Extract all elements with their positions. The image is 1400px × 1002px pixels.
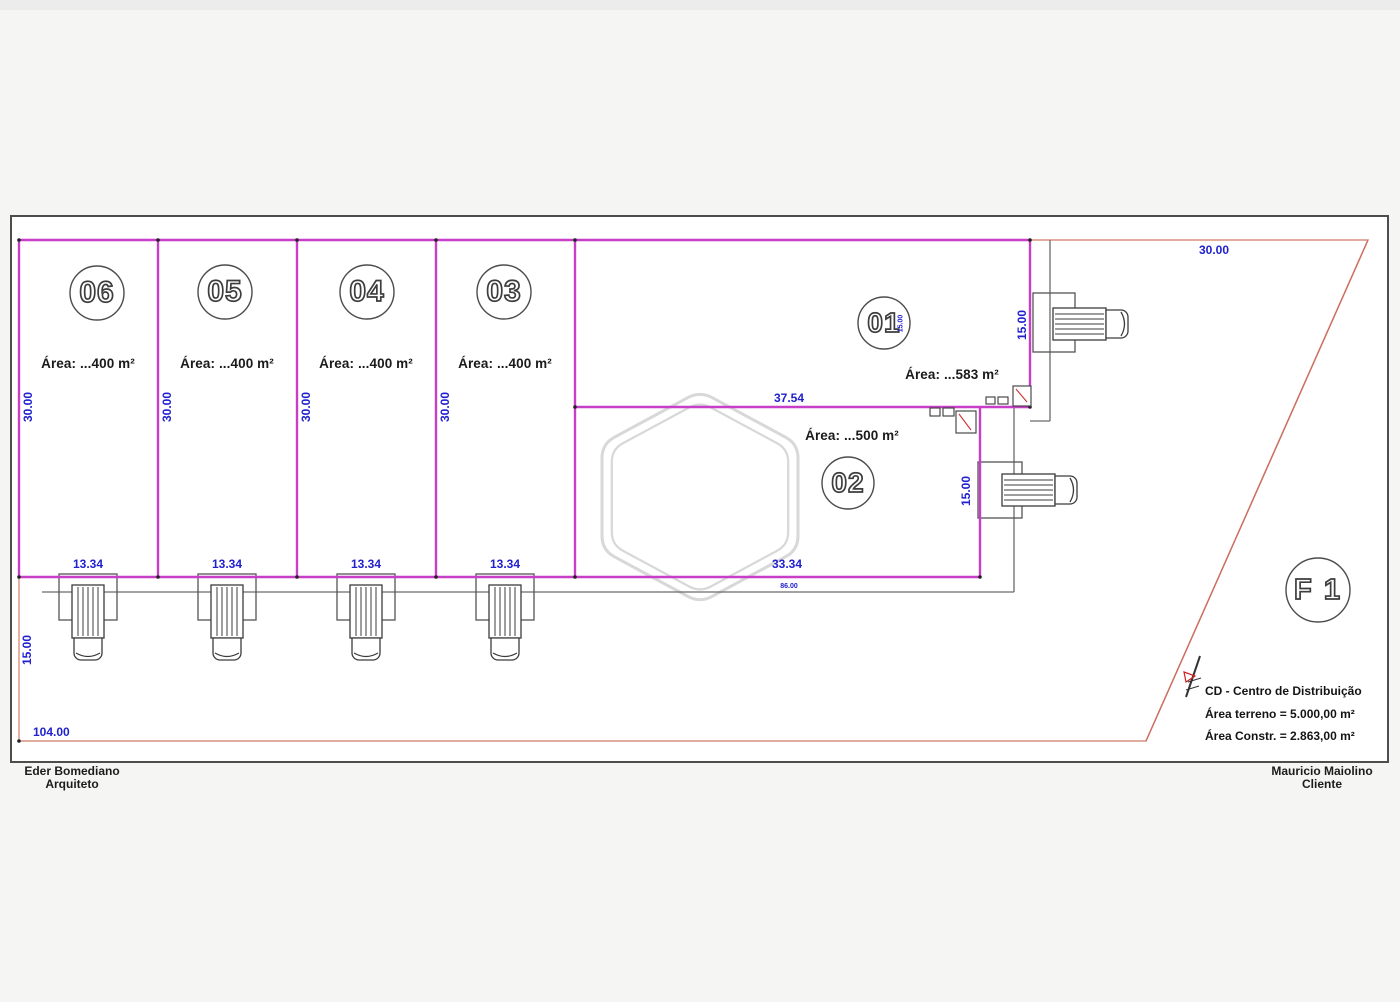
dim-lot01-side: 15.00 bbox=[1015, 303, 1029, 347]
lot-number-06: 06 bbox=[67, 276, 127, 310]
site-plan-canvas: 06 05 04 03 01 02 F 1 Área: ...400 m² Ár… bbox=[0, 0, 1400, 1002]
lot-01-area: Área: ...583 m² bbox=[867, 367, 1037, 382]
lot-06-area: Área: ...400 m² bbox=[13, 356, 163, 371]
dim-width-lot04: 13.34 bbox=[336, 557, 396, 571]
lot-number-05: 05 bbox=[195, 275, 255, 309]
truck-icon bbox=[211, 585, 243, 660]
bottom-strip bbox=[0, 0, 1400, 10]
dim-width-lot06: 13.34 bbox=[58, 557, 118, 571]
truck-icon bbox=[1002, 474, 1077, 506]
legend-terrain-area: Área terreno = 5.000,00 m² bbox=[1205, 707, 1355, 721]
lot-04-area: Área: ...400 m² bbox=[291, 356, 441, 371]
client-role: Cliente bbox=[1252, 778, 1392, 791]
truck-icon bbox=[350, 585, 382, 660]
dim-lot02-frontage: 33.34 bbox=[752, 557, 822, 571]
dim-left-height: 15.00 bbox=[20, 628, 34, 672]
lot-03-area: Área: ...400 m² bbox=[430, 356, 580, 371]
dim-bottom-width: 104.00 bbox=[33, 725, 113, 739]
dim-lot01-inner: 15.00 bbox=[898, 309, 905, 339]
lot-02-area: Área: ...500 m² bbox=[767, 428, 937, 443]
dim-width-lot03: 13.34 bbox=[475, 557, 535, 571]
architect-role: Arquiteto bbox=[12, 778, 132, 791]
lot-05-area: Área: ...400 m² bbox=[152, 356, 302, 371]
legend-title: CD - Centro de Distribuição bbox=[1205, 684, 1362, 698]
dim-top-right: 30.00 bbox=[1179, 243, 1249, 257]
dim-depth-lot03: 30.00 bbox=[438, 385, 452, 429]
plan-linework bbox=[0, 0, 1400, 1002]
lot-number-01: 01 bbox=[854, 307, 914, 339]
truck-icon bbox=[489, 585, 521, 660]
sheet-number: F 1 bbox=[1283, 574, 1353, 607]
legend-built-area: Área Constr. = 2.863,00 m² bbox=[1205, 729, 1355, 743]
dim-building-length: 86.00 bbox=[764, 583, 814, 590]
dim-depth-lot04: 30.00 bbox=[299, 385, 313, 429]
lot-number-04: 04 bbox=[337, 275, 397, 309]
dim-lot02-side: 15.00 bbox=[959, 469, 973, 513]
dim-depth-lot06: 30.00 bbox=[21, 385, 35, 429]
dim-lot01-frontage: 37.54 bbox=[754, 391, 824, 405]
dim-depth-lot05: 30.00 bbox=[160, 385, 174, 429]
dim-width-lot05: 13.34 bbox=[197, 557, 257, 571]
lot-number-02: 02 bbox=[818, 467, 878, 499]
truck-icon bbox=[72, 585, 104, 660]
lot-number-03: 03 bbox=[474, 275, 534, 309]
truck-icon bbox=[1053, 308, 1128, 340]
